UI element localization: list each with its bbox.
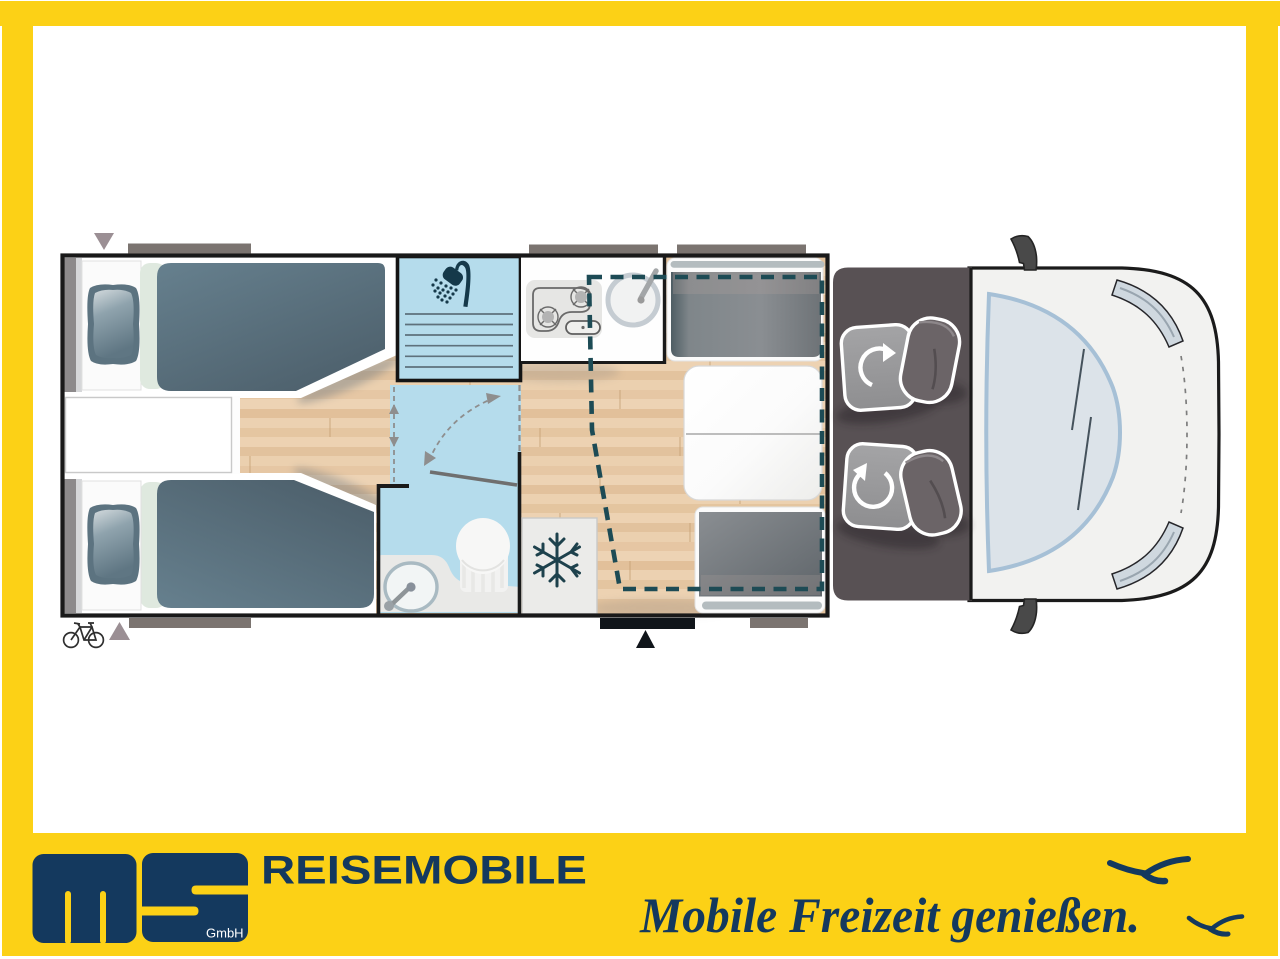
svg-text:REISEMOBILE: REISEMOBILE	[261, 849, 587, 893]
svg-text:Mobile Freizeit genießen.: Mobile Freizeit genießen.	[639, 887, 1140, 943]
svg-text:GmbH: GmbH	[206, 926, 244, 941]
